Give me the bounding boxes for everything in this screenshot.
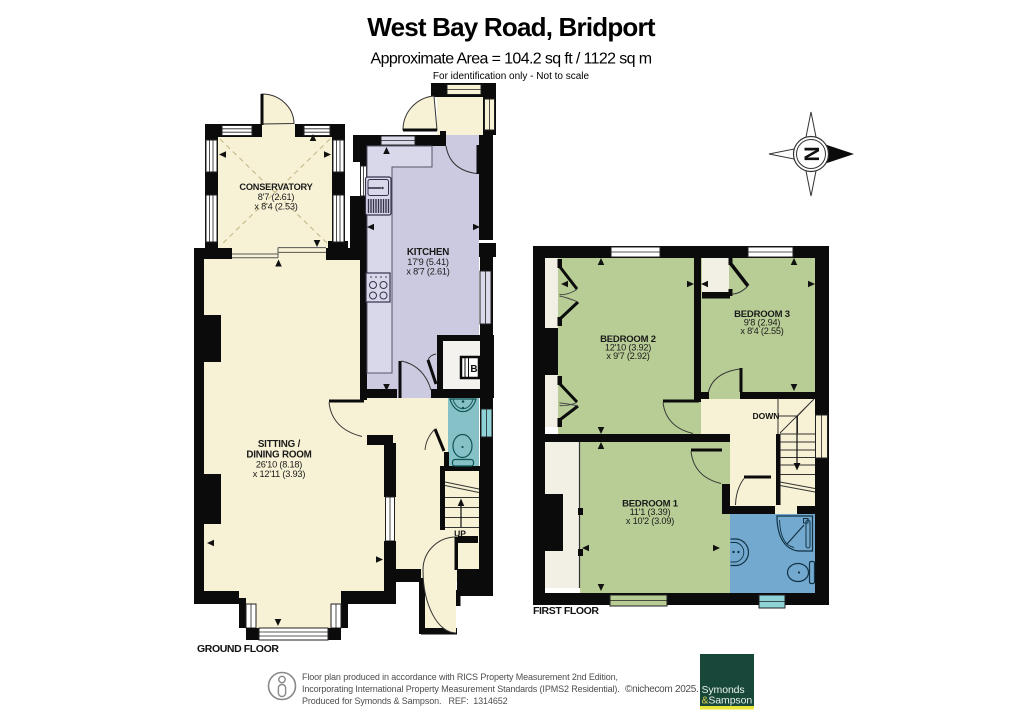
svg-text:GROUND FLOOR: GROUND FLOOR <box>197 643 279 655</box>
svg-text:8'7 (2.61): 8'7 (2.61) <box>258 192 295 202</box>
svg-text:26'10 (8.18): 26'10 (8.18) <box>256 459 302 469</box>
svg-text:N: N <box>800 146 823 161</box>
svg-text:Incorporating International Pr: Incorporating International Property Mea… <box>302 684 620 694</box>
svg-text:&Sampson: &Sampson <box>702 695 753 707</box>
svg-text:x 9'7 (2.92): x 9'7 (2.92) <box>606 351 649 361</box>
svg-text:x 12'11 (3.93): x 12'11 (3.93) <box>253 469 306 479</box>
svg-text:DOWN: DOWN <box>753 411 780 421</box>
svg-text:x 8'4 (2.53): x 8'4 (2.53) <box>254 202 297 212</box>
svg-text:Produced for Symonds & Sampson: Produced for Symonds & Sampson. REF: 131… <box>302 696 508 706</box>
svg-text:FIRST FLOOR: FIRST FLOOR <box>533 605 599 617</box>
svg-text:CONSERVATORY: CONSERVATORY <box>239 182 312 192</box>
svg-text:Approximate Area = 104.2 sq ft: Approximate Area = 104.2 sq ft / 1122 sq… <box>371 51 652 68</box>
svg-text:For identification only - Not: For identification only - Not to scale <box>433 71 590 82</box>
svg-text:B: B <box>470 364 477 375</box>
svg-text:©nichecom 2025.: ©nichecom 2025. <box>625 684 698 695</box>
svg-text:x 8'7 (2.61): x 8'7 (2.61) <box>406 267 449 277</box>
svg-text:17'9 (5.41): 17'9 (5.41) <box>407 257 449 267</box>
svg-text:x 8'4 (2.55): x 8'4 (2.55) <box>740 326 783 336</box>
svg-text:x 10'2 (3.09): x 10'2 (3.09) <box>626 516 674 526</box>
svg-text:Floor plan produced in accorda: Floor plan produced in accordance with R… <box>302 672 618 682</box>
svg-text:West Bay Road, Bridport: West Bay Road, Bridport <box>367 12 656 42</box>
